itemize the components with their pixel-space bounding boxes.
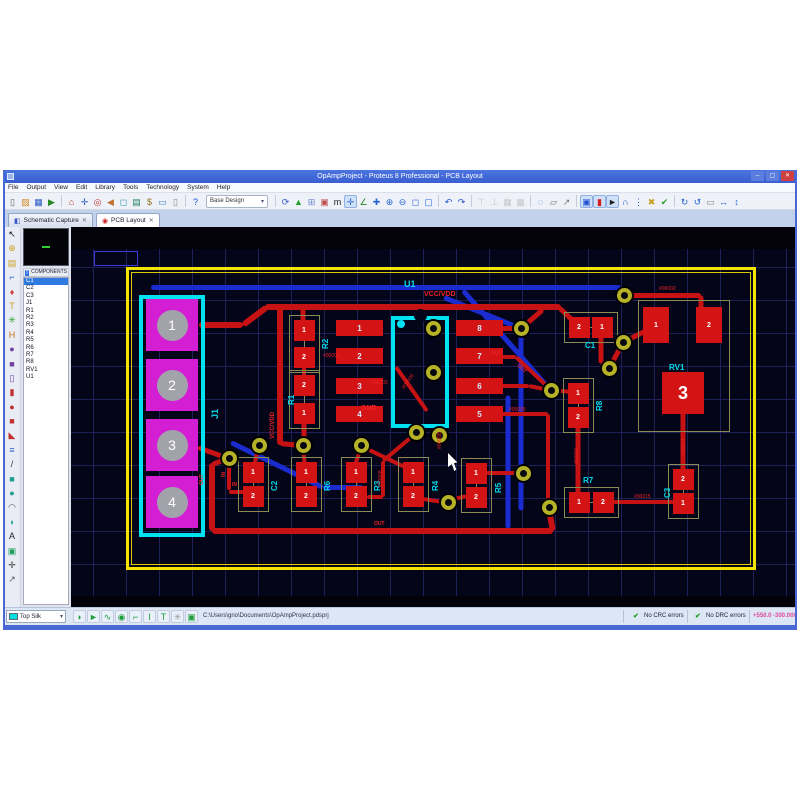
ref-label-r7: R7 bbox=[583, 476, 593, 485]
maximize-button[interactable]: ▢ bbox=[766, 171, 779, 181]
list-item-r8[interactable]: R8 bbox=[24, 359, 68, 366]
tools-icon[interactable]: ↗ bbox=[560, 195, 573, 208]
canvas-margin bbox=[71, 596, 795, 607]
list-item-r3[interactable]: R3 bbox=[24, 322, 68, 329]
net-label: #00005 bbox=[509, 407, 526, 413]
list-item-c3[interactable]: C3 bbox=[24, 293, 68, 300]
layer-stack-icon[interactable]: ≡ bbox=[5, 444, 19, 457]
menu-bar: FileOutputViewEditLibraryToolsTechnology… bbox=[3, 183, 797, 193]
ref-label-rv1: RV1 bbox=[669, 363, 684, 372]
open-project-icon[interactable]: ▨ bbox=[19, 195, 32, 208]
selection-box bbox=[94, 251, 138, 266]
ref-label-j1: J1 bbox=[210, 409, 220, 419]
net-label: #00006 bbox=[574, 447, 580, 464]
ref-label-r6: R6 bbox=[323, 481, 332, 491]
via[interactable] bbox=[617, 288, 632, 303]
list-item-r2[interactable]: R2 bbox=[24, 315, 68, 322]
2d-path-icon[interactable]: ◗ bbox=[5, 516, 19, 529]
circular-pad-mode-icon[interactable]: ● bbox=[5, 401, 19, 414]
layer-color-swatch bbox=[9, 613, 18, 620]
pad-c2-2[interactable]: 2 bbox=[243, 486, 264, 507]
square-pad-mode-icon[interactable]: ■ bbox=[5, 358, 19, 371]
layer-flip-icon[interactable]: ◗ bbox=[73, 610, 86, 623]
via[interactable] bbox=[409, 425, 424, 440]
pcb-text-label: IN bbox=[221, 472, 227, 477]
rotate-cw-icon[interactable]: ↻ bbox=[678, 195, 691, 208]
tab-label: Schematic Capture bbox=[24, 217, 79, 224]
ref-label-c1: C1 bbox=[585, 341, 595, 350]
flip-horizontal-icon[interactable]: ↔ bbox=[717, 195, 730, 208]
track-width-icon[interactable]: I bbox=[143, 610, 156, 623]
rect-pad-mode-icon[interactable]: ■ bbox=[5, 415, 19, 428]
window-border bbox=[795, 170, 797, 630]
undo-icon[interactable]: ↶ bbox=[442, 195, 455, 208]
list-item-c1[interactable]: C1 bbox=[24, 278, 68, 285]
bottom-copper-trace[interactable] bbox=[151, 285, 621, 290]
u1-notch bbox=[414, 309, 427, 322]
pan-icon[interactable]: ✚ bbox=[370, 195, 383, 208]
net-label: #00001 bbox=[323, 353, 340, 359]
via[interactable] bbox=[426, 365, 441, 380]
toolbar-separator bbox=[530, 195, 531, 207]
pad-r3-2[interactable]: 2 bbox=[346, 486, 367, 507]
toolbar-separator bbox=[438, 195, 439, 207]
pcb-text-label: OUT bbox=[199, 474, 205, 485]
pad-r3-1[interactable]: 1 bbox=[346, 462, 367, 483]
goto-sheet-icon[interactable]: ✛ bbox=[78, 195, 91, 208]
ref-label-c3: C3 bbox=[663, 488, 672, 498]
pad-r2-2[interactable]: 2 bbox=[294, 347, 315, 368]
align-right-icon[interactable]: ▩ bbox=[514, 195, 527, 208]
redraw-icon[interactable]: ⟳ bbox=[279, 195, 292, 208]
2d-symbol-icon[interactable]: ▣ bbox=[5, 545, 19, 558]
pad-r6-2[interactable]: 2 bbox=[296, 486, 317, 507]
list-item-r1[interactable]: R1 bbox=[24, 308, 68, 315]
list-item-r4[interactable]: R4 bbox=[24, 330, 68, 337]
trace-lock-icon[interactable]: ▣ bbox=[580, 195, 593, 208]
toolbar-separator bbox=[185, 195, 186, 207]
minimize-button[interactable]: – bbox=[751, 171, 764, 181]
pad-r5-2[interactable]: 2 bbox=[466, 487, 487, 508]
preview-glyph bbox=[42, 246, 50, 248]
home-icon[interactable]: ⌂ bbox=[65, 195, 78, 208]
net-label: #00008 bbox=[437, 432, 443, 449]
pad-j1-3[interactable]: 3 bbox=[146, 419, 198, 471]
ref-label-c2: C2 bbox=[270, 481, 279, 491]
tee-junction-icon[interactable]: T bbox=[157, 610, 170, 623]
pcb-text-label: OUT bbox=[491, 351, 502, 357]
copy-clip-icon[interactable]: ▱ bbox=[547, 195, 560, 208]
status-bar: Top Silk ▾ ◗►∿◉⌐IT✳▣ C:\Users\gno\Docume… bbox=[3, 607, 797, 625]
ref-label-r5: R5 bbox=[494, 483, 503, 493]
ref-label-r4: R4 bbox=[431, 481, 440, 491]
base-design-value: Base Design bbox=[210, 198, 244, 204]
via[interactable] bbox=[514, 321, 529, 336]
trace-style-icon[interactable]: ∿ bbox=[101, 610, 114, 623]
via[interactable] bbox=[426, 321, 441, 336]
electrical-rule-check-icon[interactable]: ▭ bbox=[156, 195, 169, 208]
tab-icon: ◧ bbox=[14, 217, 21, 225]
2d-arc-icon[interactable]: ◠ bbox=[5, 501, 19, 514]
pad-c2-1[interactable]: 1 bbox=[243, 462, 264, 483]
list-item-u1[interactable]: U1 bbox=[24, 374, 68, 381]
pcb-text-label: VCC/VDD bbox=[424, 291, 456, 298]
menu-library[interactable]: Library bbox=[95, 184, 115, 191]
top-copper-trace[interactable] bbox=[265, 304, 561, 310]
crc-check-icon: ✔ bbox=[633, 612, 639, 620]
routing-toolbar: ◗►∿◉⌐IT✳▣ bbox=[73, 610, 198, 623]
pad-hole: 3 bbox=[157, 430, 188, 461]
selection-filter-icon[interactable]: ► bbox=[606, 195, 619, 208]
dil-pad-mode-icon[interactable]: ▯ bbox=[5, 372, 19, 385]
pad-c3-1[interactable]: 1 bbox=[673, 493, 694, 514]
list-item-r7[interactable]: R7 bbox=[24, 352, 68, 359]
pad-r2-1[interactable]: 1 bbox=[294, 320, 315, 341]
tab-close-icon[interactable]: ✕ bbox=[149, 217, 154, 224]
net-label: #00017 bbox=[681, 438, 687, 455]
tab-schematic-capture[interactable]: ◧Schematic Capture✕ bbox=[8, 213, 93, 227]
top-copper-trace[interactable] bbox=[624, 293, 701, 298]
menu-system[interactable]: System bbox=[187, 184, 209, 191]
round-pad-mode-icon[interactable]: ● bbox=[5, 343, 19, 356]
close-button[interactable]: ✕ bbox=[781, 171, 794, 181]
2d-line-icon[interactable]: / bbox=[5, 458, 19, 471]
new-sheet-icon[interactable]: ▯ bbox=[169, 195, 182, 208]
divider bbox=[623, 610, 624, 623]
pad-u1-8[interactable]: 8 bbox=[456, 320, 503, 336]
net-label: #00003 bbox=[371, 380, 388, 386]
pad-u1-2[interactable]: 2 bbox=[336, 348, 383, 364]
auto-router-icon[interactable]: ∩ bbox=[619, 195, 632, 208]
via[interactable] bbox=[252, 438, 267, 453]
align-left-icon[interactable]: ▦ bbox=[501, 195, 514, 208]
panel-title: COMPONENTS bbox=[31, 269, 67, 276]
menu-file[interactable]: File bbox=[8, 184, 18, 191]
list-item-r6[interactable]: R6 bbox=[24, 345, 68, 352]
align-top-icon[interactable]: ⊤ bbox=[475, 195, 488, 208]
layer-selector[interactable]: Top Silk ▾ bbox=[6, 610, 66, 623]
chevron-down-icon: ▾ bbox=[60, 613, 63, 620]
list-item-r5[interactable]: R5 bbox=[24, 337, 68, 344]
track-arrow-icon[interactable]: ► bbox=[87, 610, 100, 623]
2d-text-icon[interactable]: A bbox=[5, 530, 19, 543]
main-toolbar: ▯▨▦▶⌂✛◎◀◻▤$▭▯?Base Design▾⟳▲⊞▣m✛∠✚⊕⊖◻▢↶↷… bbox=[3, 193, 797, 210]
design-explorer-icon[interactable]: ▤ bbox=[130, 195, 143, 208]
via[interactable] bbox=[296, 438, 311, 453]
divider bbox=[749, 610, 750, 623]
pad-j1-2[interactable]: 2 bbox=[146, 359, 198, 411]
via-mode-icon[interactable]: ♦ bbox=[5, 286, 19, 299]
window-border bbox=[3, 625, 797, 630]
track-mode-icon[interactable]: ⌐ bbox=[5, 271, 19, 284]
via[interactable] bbox=[544, 383, 559, 398]
menu-tools[interactable]: Tools bbox=[123, 184, 138, 191]
dimension-mode-icon[interactable]: ↗ bbox=[5, 573, 19, 586]
flip-layer-icon[interactable]: ▲ bbox=[292, 195, 305, 208]
selection-mode-icon[interactable]: ↖ bbox=[5, 228, 19, 241]
corner-mode-icon[interactable]: ⌐ bbox=[129, 610, 142, 623]
undo-view-icon[interactable]: ◀ bbox=[104, 195, 117, 208]
cursor-y-coordinate: -300.0 bbox=[773, 613, 790, 619]
pad-j1-4[interactable]: 4 bbox=[146, 476, 198, 528]
component-list: C1C2C3J1R1R2R3R4R5R6R7R8RV1U1 bbox=[23, 277, 69, 605]
pad-rv1-2[interactable]: 2 bbox=[696, 307, 722, 343]
grid-toggle-icon[interactable]: ⊞ bbox=[305, 195, 318, 208]
toolbar-separator bbox=[674, 195, 675, 207]
ref-label-r8: R8 bbox=[595, 401, 604, 411]
pcb-text-label: IN bbox=[232, 482, 237, 488]
via[interactable] bbox=[542, 500, 557, 515]
save-project-icon[interactable]: ▦ bbox=[32, 195, 45, 208]
top-copper-trace[interactable] bbox=[546, 414, 550, 505]
ratsnest-toggle-icon[interactable]: ✖ bbox=[645, 195, 658, 208]
side-panel: T COMPONENTS C1C2C3J1R1R2R3R4R5R6R7R8RV1… bbox=[21, 227, 71, 607]
pad-r4-1[interactable]: 1 bbox=[403, 462, 424, 483]
pad-hole: 4 bbox=[157, 487, 188, 518]
via[interactable] bbox=[354, 438, 369, 453]
tab-pcb-layout[interactable]: ◉PCB Layout✕ bbox=[96, 213, 160, 227]
component-mode-icon[interactable]: ⊕ bbox=[5, 242, 19, 255]
top-copper-trace[interactable] bbox=[277, 307, 283, 445]
pad-r7-2[interactable]: 2 bbox=[593, 492, 614, 513]
x-cursor-icon[interactable]: ∠ bbox=[357, 195, 370, 208]
object-selector-header: T COMPONENTS bbox=[23, 268, 69, 277]
main-area: ↖⊕▤⌐♦T✳H●■▯▮●■◣≡/■●◠◗A▣✛↗ T COMPONENTS C… bbox=[3, 227, 797, 607]
pad-hole: 1 bbox=[157, 310, 188, 341]
polygonal-pad-mode-icon[interactable]: ◣ bbox=[5, 429, 19, 442]
list-item-rv1[interactable]: RV1 bbox=[24, 367, 68, 374]
pad-u1-6[interactable]: 6 bbox=[456, 378, 503, 394]
base-design-selector[interactable]: Base Design▾ bbox=[206, 195, 268, 208]
pcb-canvas[interactable]: 12R221R121C112R812C212R612R312R412R512R7… bbox=[71, 227, 795, 607]
zone-mode-icon[interactable]: T bbox=[5, 300, 19, 313]
via[interactable] bbox=[222, 451, 237, 466]
zoom-all-icon[interactable]: ▢ bbox=[422, 195, 435, 208]
import-section-icon[interactable]: ▶ bbox=[45, 195, 58, 208]
via[interactable] bbox=[616, 335, 631, 350]
u1-pin1-dot bbox=[397, 320, 405, 328]
pad-r1-2[interactable]: 2 bbox=[294, 375, 315, 396]
origin-icon[interactable]: ✛ bbox=[344, 195, 357, 208]
net-label: #00015 bbox=[634, 494, 651, 500]
pcb-text-label: VCC/VDD bbox=[270, 412, 276, 439]
drc-status: No DRC errors bbox=[706, 613, 746, 619]
zoom-area-icon[interactable]: ◻ bbox=[409, 195, 422, 208]
pcb-text-label: OUT bbox=[374, 521, 385, 527]
2d-circle-icon[interactable]: ● bbox=[5, 487, 19, 500]
metric-toggle-icon[interactable]: m bbox=[331, 195, 344, 208]
tab-close-icon[interactable]: ✕ bbox=[82, 217, 87, 224]
zoom-view-icon[interactable]: ◻ bbox=[117, 195, 130, 208]
top-copper-trace[interactable] bbox=[501, 384, 529, 388]
tab-icon: ◉ bbox=[102, 217, 108, 225]
crc-status: No CRC errors bbox=[644, 613, 684, 619]
net-label: #00002 bbox=[659, 286, 676, 292]
align-bottom-icon[interactable]: ⊥ bbox=[488, 195, 501, 208]
app-window: OpAmpProject - Proteus 8 Professional - … bbox=[3, 170, 797, 630]
selector-icon[interactable]: T bbox=[25, 270, 29, 276]
toolbar-separator bbox=[275, 195, 276, 207]
new-file-icon[interactable]: ▯ bbox=[6, 195, 19, 208]
pad-r4-2[interactable]: 2 bbox=[403, 486, 424, 507]
divider bbox=[687, 610, 688, 623]
bill-of-materials-icon[interactable]: $ bbox=[143, 195, 156, 208]
connectivity-highlight-mode-icon[interactable]: H bbox=[5, 329, 19, 342]
zoom-in-icon[interactable]: ⊕ bbox=[383, 195, 396, 208]
pad-c1-2[interactable]: 2 bbox=[569, 317, 590, 338]
tab-bar: ◧Schematic Capture✕◉PCB Layout✕ bbox=[3, 210, 797, 227]
toolbar-separator bbox=[576, 195, 577, 207]
flip-vertical-icon[interactable]: ↕ bbox=[730, 195, 743, 208]
pad-c1-1[interactable]: 1 bbox=[592, 317, 613, 338]
pad-j1-1[interactable]: 1 bbox=[146, 299, 198, 351]
bottom-copper-trace[interactable] bbox=[519, 328, 524, 473]
pad-u1-5[interactable]: 5 bbox=[456, 406, 503, 422]
pcb-text-label: GND bbox=[361, 405, 377, 412]
pad-r1-1[interactable]: 1 bbox=[294, 403, 315, 424]
pad-r8-1[interactable]: 1 bbox=[568, 383, 589, 404]
pcb-text-label: U1 bbox=[404, 279, 416, 289]
layer-selector-value: Top Silk bbox=[20, 614, 41, 620]
menu-technology[interactable]: Technology bbox=[146, 184, 179, 191]
2d-box-icon[interactable]: ■ bbox=[5, 473, 19, 486]
file-path: C:\Users\gno\Documents\OpAmpProject.pdsp… bbox=[203, 613, 329, 619]
pad-hole: 2 bbox=[157, 370, 188, 401]
rotate-ccw-icon[interactable]: ↺ bbox=[691, 195, 704, 208]
help-icon[interactable]: ? bbox=[189, 195, 202, 208]
menu-help[interactable]: Help bbox=[217, 184, 230, 191]
menu-edit[interactable]: Edit bbox=[76, 184, 87, 191]
mode-toolbar: ↖⊕▤⌐♦T✳H●■▯▮●■◣≡/■●◠◗A▣✛↗ bbox=[3, 227, 21, 607]
connectivity-check-icon[interactable]: ✔ bbox=[658, 195, 671, 208]
ref-label-r2: R2 bbox=[321, 339, 330, 349]
log-view-icon[interactable]: ▣ bbox=[185, 610, 198, 623]
pad-rv1-3[interactable]: 3 bbox=[662, 372, 704, 414]
via[interactable] bbox=[441, 495, 456, 510]
pad-r7-1[interactable]: 1 bbox=[569, 492, 590, 513]
window-border bbox=[3, 170, 5, 630]
pad-r6-1[interactable]: 1 bbox=[296, 462, 317, 483]
toolbar-separator bbox=[61, 195, 62, 207]
canvas-margin bbox=[71, 227, 795, 249]
search-tag-icon[interactable]: ◌ bbox=[534, 195, 547, 208]
pin-mode-icon[interactable]: ▮ bbox=[593, 195, 606, 208]
rotation-value-icon[interactable]: ▭ bbox=[704, 195, 717, 208]
pad-r5-1[interactable]: 1 bbox=[466, 463, 487, 484]
package-preview bbox=[23, 228, 69, 266]
top-copper-trace[interactable] bbox=[199, 322, 243, 328]
via[interactable] bbox=[602, 361, 617, 376]
zoom-out-icon[interactable]: ⊖ bbox=[396, 195, 409, 208]
top-copper-trace[interactable] bbox=[212, 528, 553, 534]
tab-label: PCB Layout bbox=[111, 217, 146, 224]
pad-r8-2[interactable]: 2 bbox=[568, 407, 589, 428]
title-bar: OpAmpProject - Proteus 8 Professional - … bbox=[3, 170, 797, 183]
layer-colours-icon[interactable]: ▣ bbox=[318, 195, 331, 208]
window-title: OpAmpProject - Proteus 8 Professional - … bbox=[3, 170, 797, 183]
list-item-c2[interactable]: C2 bbox=[24, 285, 68, 292]
edge-pad-mode-icon[interactable]: ▮ bbox=[5, 386, 19, 399]
pad-c3-2[interactable]: 2 bbox=[673, 469, 694, 490]
cursor-x-coordinate: +550.0 bbox=[753, 613, 772, 619]
center-at-icon[interactable]: ◎ bbox=[91, 195, 104, 208]
ref-label-r1: R1 bbox=[287, 395, 296, 405]
menu-view[interactable]: View bbox=[54, 184, 68, 191]
pad-u1-1[interactable]: 1 bbox=[336, 320, 383, 336]
top-copper-trace[interactable] bbox=[501, 355, 516, 359]
list-item-j1[interactable]: J1 bbox=[24, 300, 68, 307]
origin-marker-icon[interactable]: ✛ bbox=[5, 559, 19, 572]
top-copper-trace[interactable] bbox=[611, 500, 674, 504]
via-style-icon[interactable]: ◉ bbox=[115, 610, 128, 623]
pad-rv1-1[interactable]: 1 bbox=[643, 307, 669, 343]
design-rule-manager-icon[interactable]: ⋮ bbox=[632, 195, 645, 208]
via[interactable] bbox=[516, 466, 531, 481]
chevron-down-icon: ▾ bbox=[261, 198, 264, 205]
toolbar-separator bbox=[471, 195, 472, 207]
top-copper-trace[interactable] bbox=[209, 463, 215, 531]
drc-check-icon: ✔ bbox=[695, 612, 701, 620]
ratsnest-mode-icon[interactable]: ✳ bbox=[5, 314, 19, 327]
package-mode-icon[interactable]: ▤ bbox=[5, 257, 19, 270]
redo-icon[interactable]: ↷ bbox=[455, 195, 468, 208]
net-label: #00008 bbox=[378, 470, 384, 487]
ratsnest-view-icon[interactable]: ✳ bbox=[171, 610, 184, 623]
menu-output[interactable]: Output bbox=[26, 184, 46, 191]
